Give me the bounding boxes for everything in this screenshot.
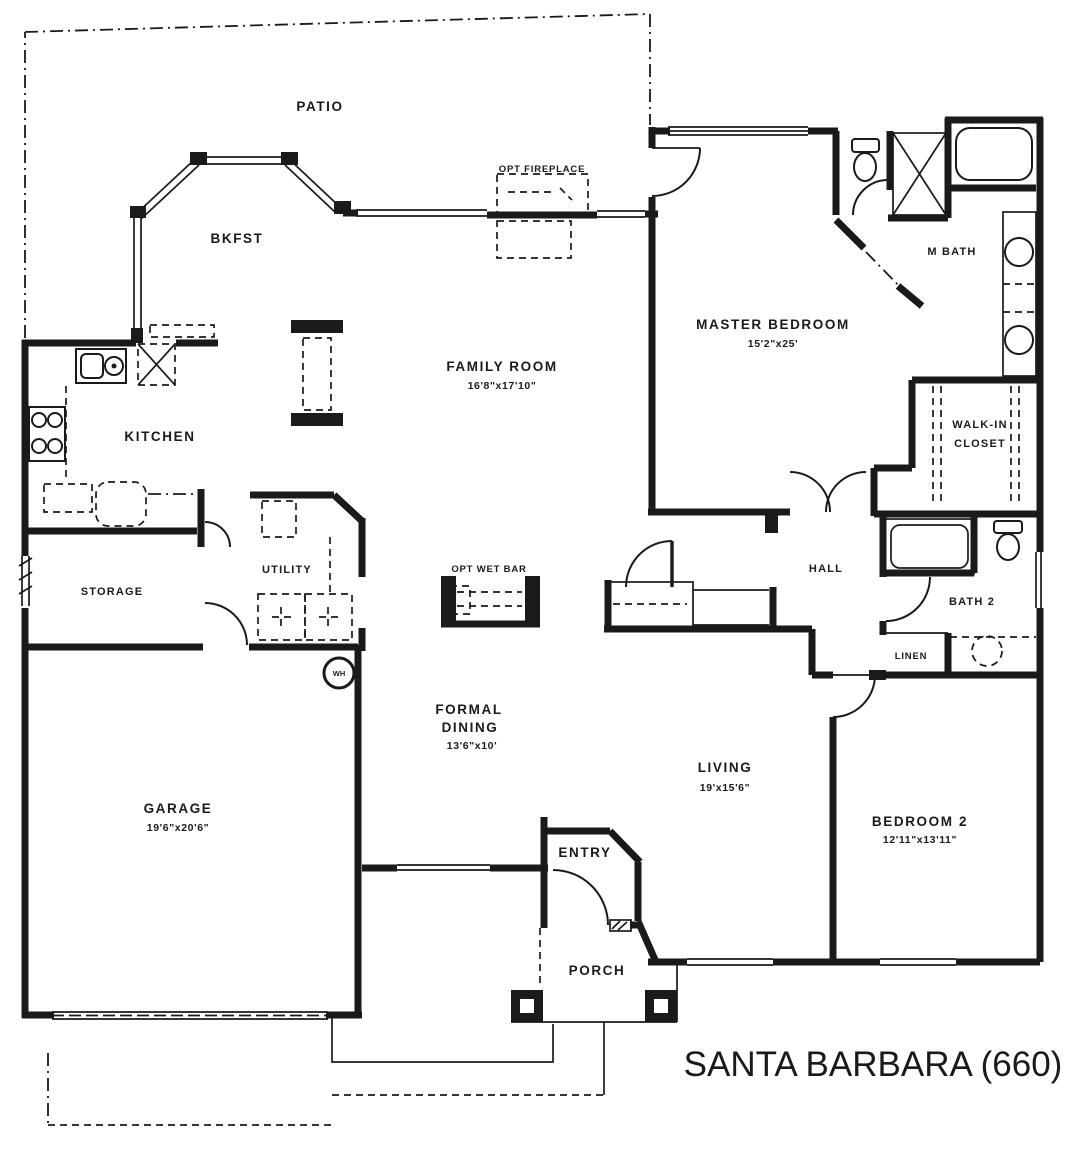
- master-double-doors: [790, 472, 866, 512]
- utility-fixtures: WH: [258, 501, 354, 688]
- porch-columns: [511, 990, 677, 1022]
- kitchen-fixtures: [29, 325, 214, 526]
- kitchen-sink: [76, 349, 126, 383]
- wet-bar: [441, 576, 540, 624]
- hall-label: HALL: [809, 563, 843, 575]
- patio-label: PATIO: [296, 99, 343, 114]
- master-bedroom-dims: 15'2"x25': [748, 338, 798, 350]
- island-dashed: [96, 482, 146, 526]
- linen-label: LINEN: [895, 651, 928, 662]
- living-dims: 19'x15'6": [700, 782, 750, 794]
- bath2-sink: [972, 636, 1002, 666]
- water-heater-label: WH: [333, 669, 346, 678]
- bkfst-label: BKFST: [211, 231, 264, 246]
- walls: [22, 118, 1043, 1018]
- master-vanity-sinks: [1003, 212, 1036, 376]
- master-shower: [893, 133, 946, 215]
- formal-dining-label-2: DINING: [442, 720, 499, 735]
- plan-title: SANTA BARBARA (660): [684, 1045, 1063, 1084]
- bath2-label: BATH 2: [949, 596, 995, 608]
- wall-corner-block: [281, 152, 298, 165]
- hall-closets: [607, 582, 769, 627]
- storage-label: STORAGE: [81, 586, 144, 598]
- master-bedroom-label: MASTER BEDROOM: [696, 317, 850, 332]
- porch-label: PORCH: [569, 963, 626, 978]
- bath2-fixtures: [883, 519, 1036, 666]
- bedroom2-label: BEDROOM 2: [872, 814, 968, 829]
- family-room-label: FAMILY ROOM: [446, 359, 557, 374]
- floor-plan-sheet: WH PATIO BKFST OPT FIREPLACE FAMILY ROOM…: [0, 0, 1069, 1157]
- garage-label: GARAGE: [144, 801, 213, 816]
- entry-label: ENTRY: [558, 845, 611, 860]
- media-niche: [291, 320, 343, 426]
- opt-fireplace-label: OPT FIREPLACE: [499, 164, 585, 175]
- wall-stub: [765, 515, 778, 533]
- entry-threshold: [610, 920, 631, 931]
- patio-boundary: [25, 14, 650, 338]
- sliding-door-window: [668, 127, 808, 135]
- family-room-dims: 16'8"x17'10": [468, 380, 537, 392]
- storage-side-door: [19, 556, 32, 606]
- floor-plan-canvas: WH PATIO BKFST OPT FIREPLACE FAMILY ROOM…: [0, 0, 1069, 1157]
- master-bathtub: [956, 128, 1032, 180]
- utility-label: UTILITY: [262, 564, 312, 576]
- dishwasher-dashed: [44, 484, 92, 512]
- garage-dims: 19'6"x20'6": [147, 822, 209, 834]
- master-toilet: [852, 139, 879, 181]
- walk-in-label-1: WALK-IN: [952, 419, 1007, 431]
- bath2-tub: [885, 519, 974, 574]
- living-label: LIVING: [698, 760, 753, 775]
- master-bath-door-swing: [866, 252, 903, 290]
- m-bath-label: M BATH: [927, 246, 976, 258]
- wall-corner-block: [131, 328, 143, 343]
- entry-door: [553, 870, 608, 925]
- stove: [29, 407, 65, 461]
- formal-dining-dims: 13'6"x10': [447, 740, 497, 752]
- opt-wet-bar-label: OPT WET BAR: [451, 564, 526, 575]
- kitchen-label: KITCHEN: [124, 429, 195, 444]
- breakfast-bar-dashed: [150, 325, 214, 337]
- bath2-toilet: [994, 521, 1022, 560]
- formal-dining-label-1: FORMAL: [435, 702, 502, 717]
- wall-corner-block: [190, 152, 207, 165]
- bedroom2-dims: 12'11"x13'11": [883, 834, 957, 846]
- driveway-walkway-lines: [48, 928, 677, 1125]
- water-heater: WH: [324, 658, 354, 688]
- walk-in-label-2: CLOSET: [954, 438, 1006, 450]
- pantry-skylight-box: [138, 344, 175, 385]
